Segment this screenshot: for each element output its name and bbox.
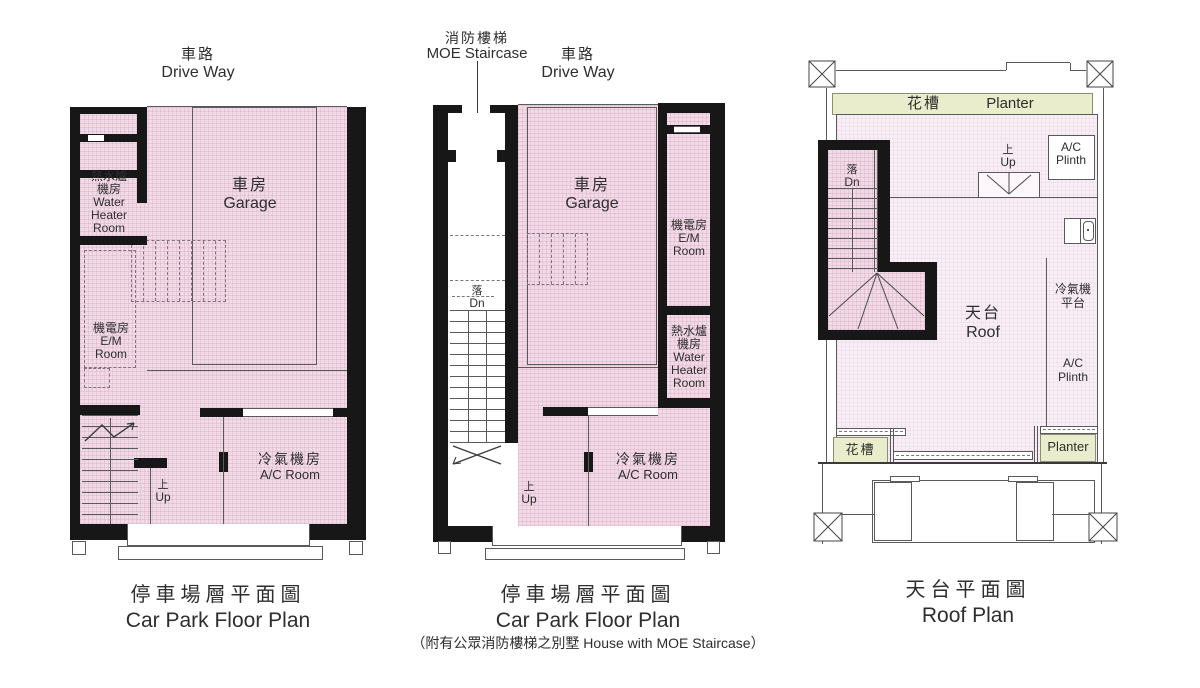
railing-dots <box>1043 429 1095 430</box>
sink-drain <box>1087 229 1089 231</box>
corner-column-icon <box>808 60 836 88</box>
wall <box>433 105 448 542</box>
platform-dash-line <box>575 234 576 284</box>
shaft-dash-line <box>450 280 505 281</box>
wall <box>658 103 725 113</box>
window <box>588 407 658 416</box>
window <box>674 126 700 133</box>
parapet-line <box>1006 63 1007 70</box>
roof-label-zh: 天台 <box>933 305 1033 323</box>
corner-column-icon <box>813 512 843 542</box>
wall <box>543 407 588 416</box>
ac-plinth-label: Plinth <box>1048 154 1094 167</box>
wall <box>137 107 147 203</box>
ac-room-label-en: A/C Room <box>240 468 340 483</box>
roof-edge-line <box>818 462 1107 464</box>
railing-post <box>893 428 894 464</box>
up-label-en: Up <box>516 493 542 506</box>
partition-line <box>223 417 224 524</box>
em-room-dashed-box <box>84 368 110 388</box>
railing <box>836 428 906 436</box>
stair-treads <box>450 310 505 443</box>
caption-carpark-moe-en: Car Park Floor Plan <box>468 609 708 633</box>
platform-dash-line <box>563 234 564 284</box>
platform-dash-line <box>551 234 552 284</box>
planter-bottom-label-en: Planter <box>1040 440 1096 455</box>
stair-rail-line <box>468 310 469 443</box>
planter-band <box>832 93 1093 115</box>
water-heater-label: Room <box>664 377 714 390</box>
car-platform-dashed <box>527 233 588 285</box>
planter-top-label-en: Planter <box>975 96 1045 113</box>
column-base <box>349 541 363 555</box>
stair-rail-line <box>486 310 487 443</box>
garage-label-en: Garage <box>190 195 310 213</box>
wall <box>490 105 505 113</box>
shaft-dash-line <box>450 235 505 236</box>
door-jamb <box>448 150 456 162</box>
parapet-line <box>836 70 1006 71</box>
railing <box>1040 426 1098 434</box>
platform-dash-line <box>155 241 156 301</box>
handrail-line <box>877 150 878 272</box>
planter-bottom-label-zh: 花槽 <box>833 443 888 458</box>
ac-room-label-zh: 冷氣機房 <box>240 452 340 468</box>
ac-platform-label: 平台 <box>1050 297 1096 310</box>
entrance-apron-outer <box>118 546 323 560</box>
lower-structure-tab <box>1008 476 1038 482</box>
entrance-apron <box>492 526 682 546</box>
floor-line <box>147 370 347 371</box>
garage-label-zh: 車房 <box>532 177 652 195</box>
entrance-apron-outer <box>485 548 685 560</box>
wall <box>333 408 347 417</box>
roof-label-en: Roof <box>933 324 1033 342</box>
floor-line <box>518 367 658 368</box>
em-room-label: Room <box>84 348 138 361</box>
platform-dash-line <box>167 241 168 301</box>
up-label-en: Up <box>150 491 176 504</box>
ac-room-label-en: A/C Room <box>598 468 698 483</box>
stair-direction-mark <box>450 445 505 467</box>
corner-column-icon <box>1086 60 1114 88</box>
wall <box>80 236 147 245</box>
wall <box>70 107 147 114</box>
platform-dash-line <box>215 241 216 301</box>
up-direction-mark <box>978 172 1040 198</box>
dn-label-en: Dn <box>462 297 492 310</box>
wall <box>70 107 80 540</box>
lower-structure-tab <box>890 476 920 482</box>
column-base <box>707 541 720 554</box>
wall <box>200 408 243 417</box>
ac-platform-label: 冷氣機 <box>1050 283 1096 296</box>
garage-outline <box>192 107 317 365</box>
wall <box>134 458 167 468</box>
driveway-label-en: Drive Way <box>138 64 258 82</box>
wall <box>505 105 518 443</box>
column-base <box>72 541 86 555</box>
wall <box>710 103 725 542</box>
entrance-apron <box>127 524 310 546</box>
platform-dash-line <box>203 241 204 301</box>
stair-winders <box>828 272 925 330</box>
stair-treads <box>828 188 878 272</box>
lower-pillar <box>874 482 912 541</box>
railing-post <box>890 428 891 464</box>
stair-direction-mark <box>84 420 136 444</box>
ac-plinth-label: Plinth <box>1050 371 1096 384</box>
platform-dash-line <box>191 241 192 301</box>
railing-dots <box>896 455 1030 456</box>
driveway-label-zh: 車路 <box>518 47 638 64</box>
platform-dash-line <box>539 234 540 284</box>
em-room-label: Room <box>664 245 714 258</box>
caption-carpark-en: Car Park Floor Plan <box>98 609 338 633</box>
parapet-line <box>1070 70 1086 71</box>
sink-basin <box>1083 221 1094 241</box>
outer-wall-line <box>1103 88 1104 464</box>
caption-roof-en: Roof Plan <box>868 604 1068 628</box>
up-label-en: Up <box>995 156 1021 169</box>
garage-label-zh: 車房 <box>190 177 310 195</box>
partition-line <box>588 416 589 526</box>
floor-plan-sheet: 車路 Drive Way <box>0 0 1200 688</box>
corner-column-icon <box>1088 512 1118 542</box>
door-jamb <box>497 150 505 162</box>
caption-roof-zh: 天台平面圖 <box>868 579 1068 601</box>
dn-label-en: Dn <box>838 176 866 189</box>
wall <box>448 105 462 113</box>
railing-post <box>1034 426 1035 462</box>
wall-opening <box>88 135 104 141</box>
railing-post <box>1037 426 1038 462</box>
ac-plinth-label: A/C <box>1050 357 1096 370</box>
platform-dash-line <box>179 241 180 301</box>
water-heater-label: Room <box>80 222 138 235</box>
window <box>243 408 333 417</box>
caption-carpark-zh: 停車場層平面圖 <box>98 584 338 606</box>
garage-label-en: Garage <box>532 195 652 213</box>
sink-divider <box>1080 218 1081 244</box>
lower-pillar <box>1016 482 1054 541</box>
caption-carpark-moe-note: （附有公眾消防樓梯之別墅 House with MOE Staircase） <box>388 636 788 652</box>
handrail-line <box>874 150 875 272</box>
wall <box>667 398 710 408</box>
wall <box>667 306 710 315</box>
parapet-line <box>1070 63 1071 70</box>
column-base <box>438 541 451 554</box>
wall <box>80 405 140 415</box>
platform-dash-line <box>143 241 144 301</box>
driveway-label-zh: 車路 <box>138 47 258 64</box>
driveway-label-en: Drive Way <box>518 64 638 82</box>
planter-top-label-zh: 花槽 <box>894 96 954 113</box>
caption-carpark-moe-zh: 停車場層平面圖 <box>468 584 708 606</box>
parapet-line <box>1006 62 1070 63</box>
driveway-edge-line <box>518 104 658 105</box>
ac-room-label-zh: 冷氣機房 <box>598 452 698 468</box>
stair-rail-line <box>852 188 853 272</box>
wall <box>347 107 366 540</box>
